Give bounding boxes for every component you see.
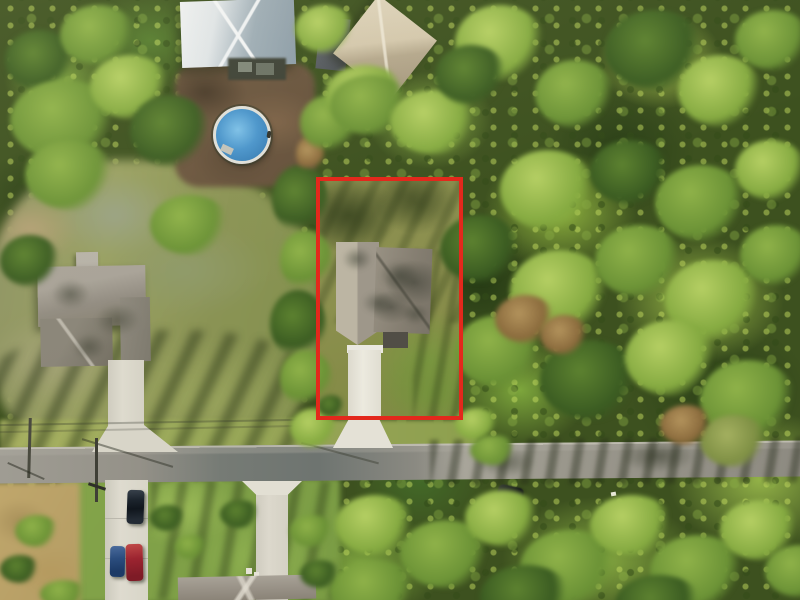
aerial-photo — [0, 0, 800, 600]
property-boundary-outline — [316, 177, 463, 420]
